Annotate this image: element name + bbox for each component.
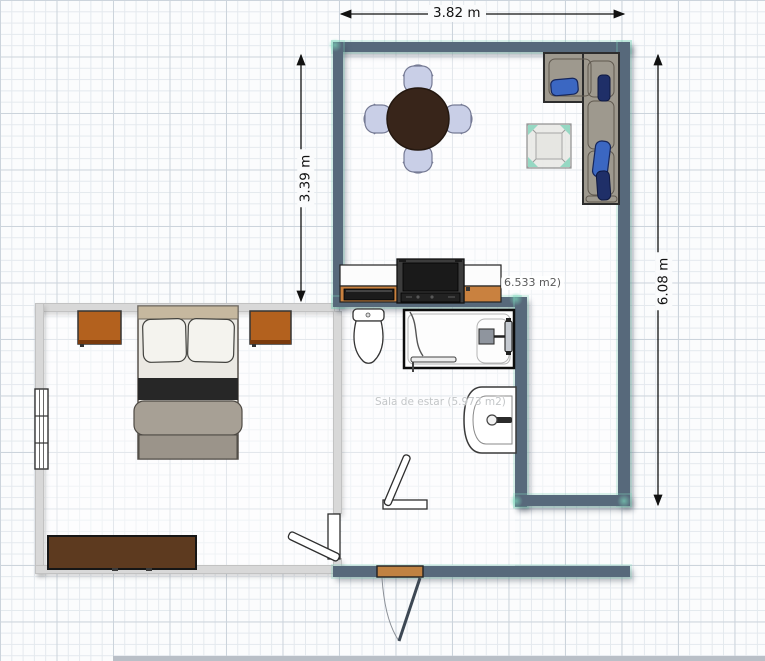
shower-tub[interactable] (404, 310, 514, 372)
dresser[interactable] (48, 536, 196, 571)
entrance-door[interactable] (377, 566, 423, 641)
shower-head (479, 329, 494, 344)
room-area-label-living[interactable]: 6.533 m2) (501, 276, 564, 290)
room-area-label-sala[interactable]: Sala de estar (5.973 m2) (375, 395, 506, 409)
toilet[interactable] (353, 309, 384, 363)
dimension-label-right[interactable]: 6.08 m (655, 253, 672, 311)
dimension-label-left[interactable]: 3.39 m (297, 150, 314, 208)
dining-table[interactable] (387, 88, 449, 150)
floor-plan-canvas[interactable]: 3.82 m 3.39 m 6.08 m 6.533 m2) Sala de e… (0, 0, 765, 661)
bed-pillow-left (142, 318, 186, 362)
sofa-pillow-navy-1 (598, 75, 610, 101)
dimension-label-top[interactable]: 3.82 m (428, 5, 486, 22)
sofa-pillow-blue-1 (550, 78, 578, 96)
bed-pillow-right (187, 318, 234, 362)
coffee-table[interactable] (527, 124, 571, 168)
tv[interactable] (397, 259, 464, 303)
canvas-bottom-edge (113, 656, 765, 661)
nightstand-right[interactable] (250, 311, 291, 347)
bed[interactable] (134, 306, 242, 459)
tv-console[interactable] (340, 259, 501, 303)
nightstand-left[interactable] (78, 311, 121, 347)
door-bathroom[interactable] (383, 454, 427, 509)
sofa-pillow-navy-2 (596, 171, 611, 201)
window-radiator[interactable] (35, 389, 48, 469)
furniture-layer (0, 0, 765, 661)
door-bedroom[interactable] (287, 514, 340, 562)
